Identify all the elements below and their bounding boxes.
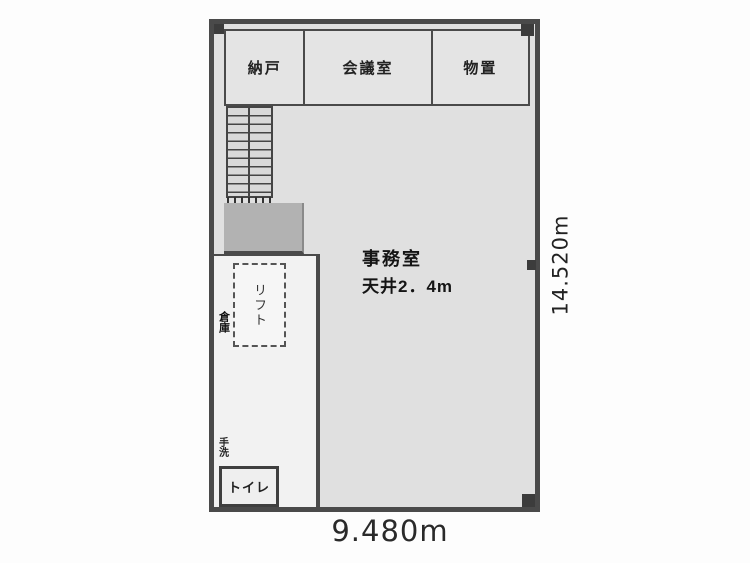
room-label: 物置	[463, 57, 497, 78]
lift-label: リフト	[250, 283, 269, 328]
office-ceiling-height: 天井2．4m	[362, 274, 532, 300]
lift-shaft: リフト	[233, 263, 286, 347]
office-name: 事務室	[362, 246, 532, 274]
stairs-handrail-line	[248, 108, 250, 196]
stair-landing	[224, 203, 304, 254]
toilet-room: トイレ	[219, 466, 279, 507]
room-storage-monooki: 物置	[431, 31, 528, 104]
top-rooms-strip: 納戸 会議室 物置	[224, 29, 530, 106]
office-label: 事務室 天井2．4m	[362, 246, 532, 300]
room-label: 納戸	[248, 57, 282, 78]
dimension-height: 14.520m	[534, 185, 586, 345]
side-storage-label: 倉庫	[216, 296, 231, 348]
room-meeting: 会議室	[303, 31, 430, 104]
column-marker-top-right	[521, 24, 534, 36]
room-label: 会議室	[343, 57, 394, 78]
column-marker-top-left	[214, 24, 224, 34]
floor-plan-image: 納戸 会議室 物置 リフト 倉庫 手洗 トイレ 事務室 天井2．4m 1	[0, 0, 750, 563]
room-storage-nando: 納戸	[226, 31, 303, 104]
dimension-width: 9.480m	[275, 514, 505, 548]
washstand-label: 手洗	[215, 426, 229, 468]
column-marker-bottom-right	[522, 494, 535, 507]
toilet-label: トイレ	[228, 477, 270, 496]
